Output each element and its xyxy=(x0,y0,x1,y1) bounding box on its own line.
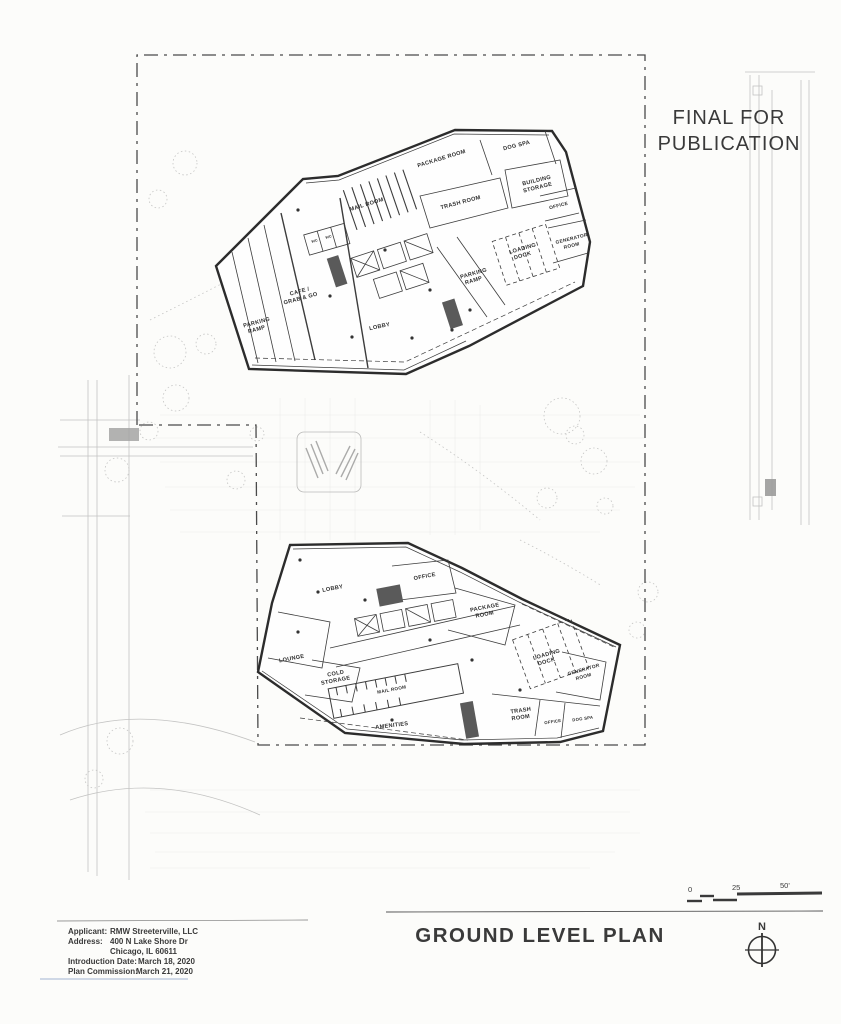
commission-value: March 21, 2020 xyxy=(136,967,193,976)
address-value-2: Chicago, IL 60611 xyxy=(110,947,178,956)
lower-building: LOBBY OFFICE PACKAGE ROOM LOADING DOCK G… xyxy=(258,543,620,744)
north-arrow: N xyxy=(745,921,779,967)
address-label: Address: xyxy=(68,937,103,946)
info-rule xyxy=(57,920,308,921)
applicant-value: RMW Streeterville, LLC xyxy=(110,927,198,936)
title-rule xyxy=(386,911,823,912)
stamp-line-1: FINAL FOR xyxy=(673,107,786,129)
plan-drawing: PACKAGE ROOM DOG SPA MAIL ROOM BUILDING … xyxy=(0,0,841,1024)
stamp-line-2: PUBLICATION xyxy=(658,133,801,155)
introduction-value: March 18, 2020 xyxy=(138,957,195,966)
address-value: 400 N Lake Shore Dr xyxy=(110,937,188,946)
left-street xyxy=(58,375,260,880)
scale-tick-25: 25 xyxy=(732,883,740,892)
scale-tick-0: 0 xyxy=(688,885,692,894)
ground-level-plan-sheet: PACKAGE ROOM DOG SPA MAIL ROOM BUILDING … xyxy=(0,0,841,1024)
commission-label: Plan Commission: xyxy=(68,967,138,976)
project-info-block: Applicant: RMW Streeterville, LLC Addres… xyxy=(40,920,308,979)
scale-bar: 0 25 50' xyxy=(687,881,822,901)
north-label: N xyxy=(758,921,766,933)
applicant-label: Applicant: xyxy=(68,927,107,936)
introduction-label: Introduction Date: xyxy=(68,957,137,966)
sheet-title: GROUND LEVEL PLAN xyxy=(415,924,665,947)
scale-tick-50: 50' xyxy=(780,881,790,890)
upper-building: PACKAGE ROOM DOG SPA MAIL ROOM BUILDING … xyxy=(216,130,590,374)
publication-stamp: FINAL FOR PUBLICATION xyxy=(658,107,801,155)
